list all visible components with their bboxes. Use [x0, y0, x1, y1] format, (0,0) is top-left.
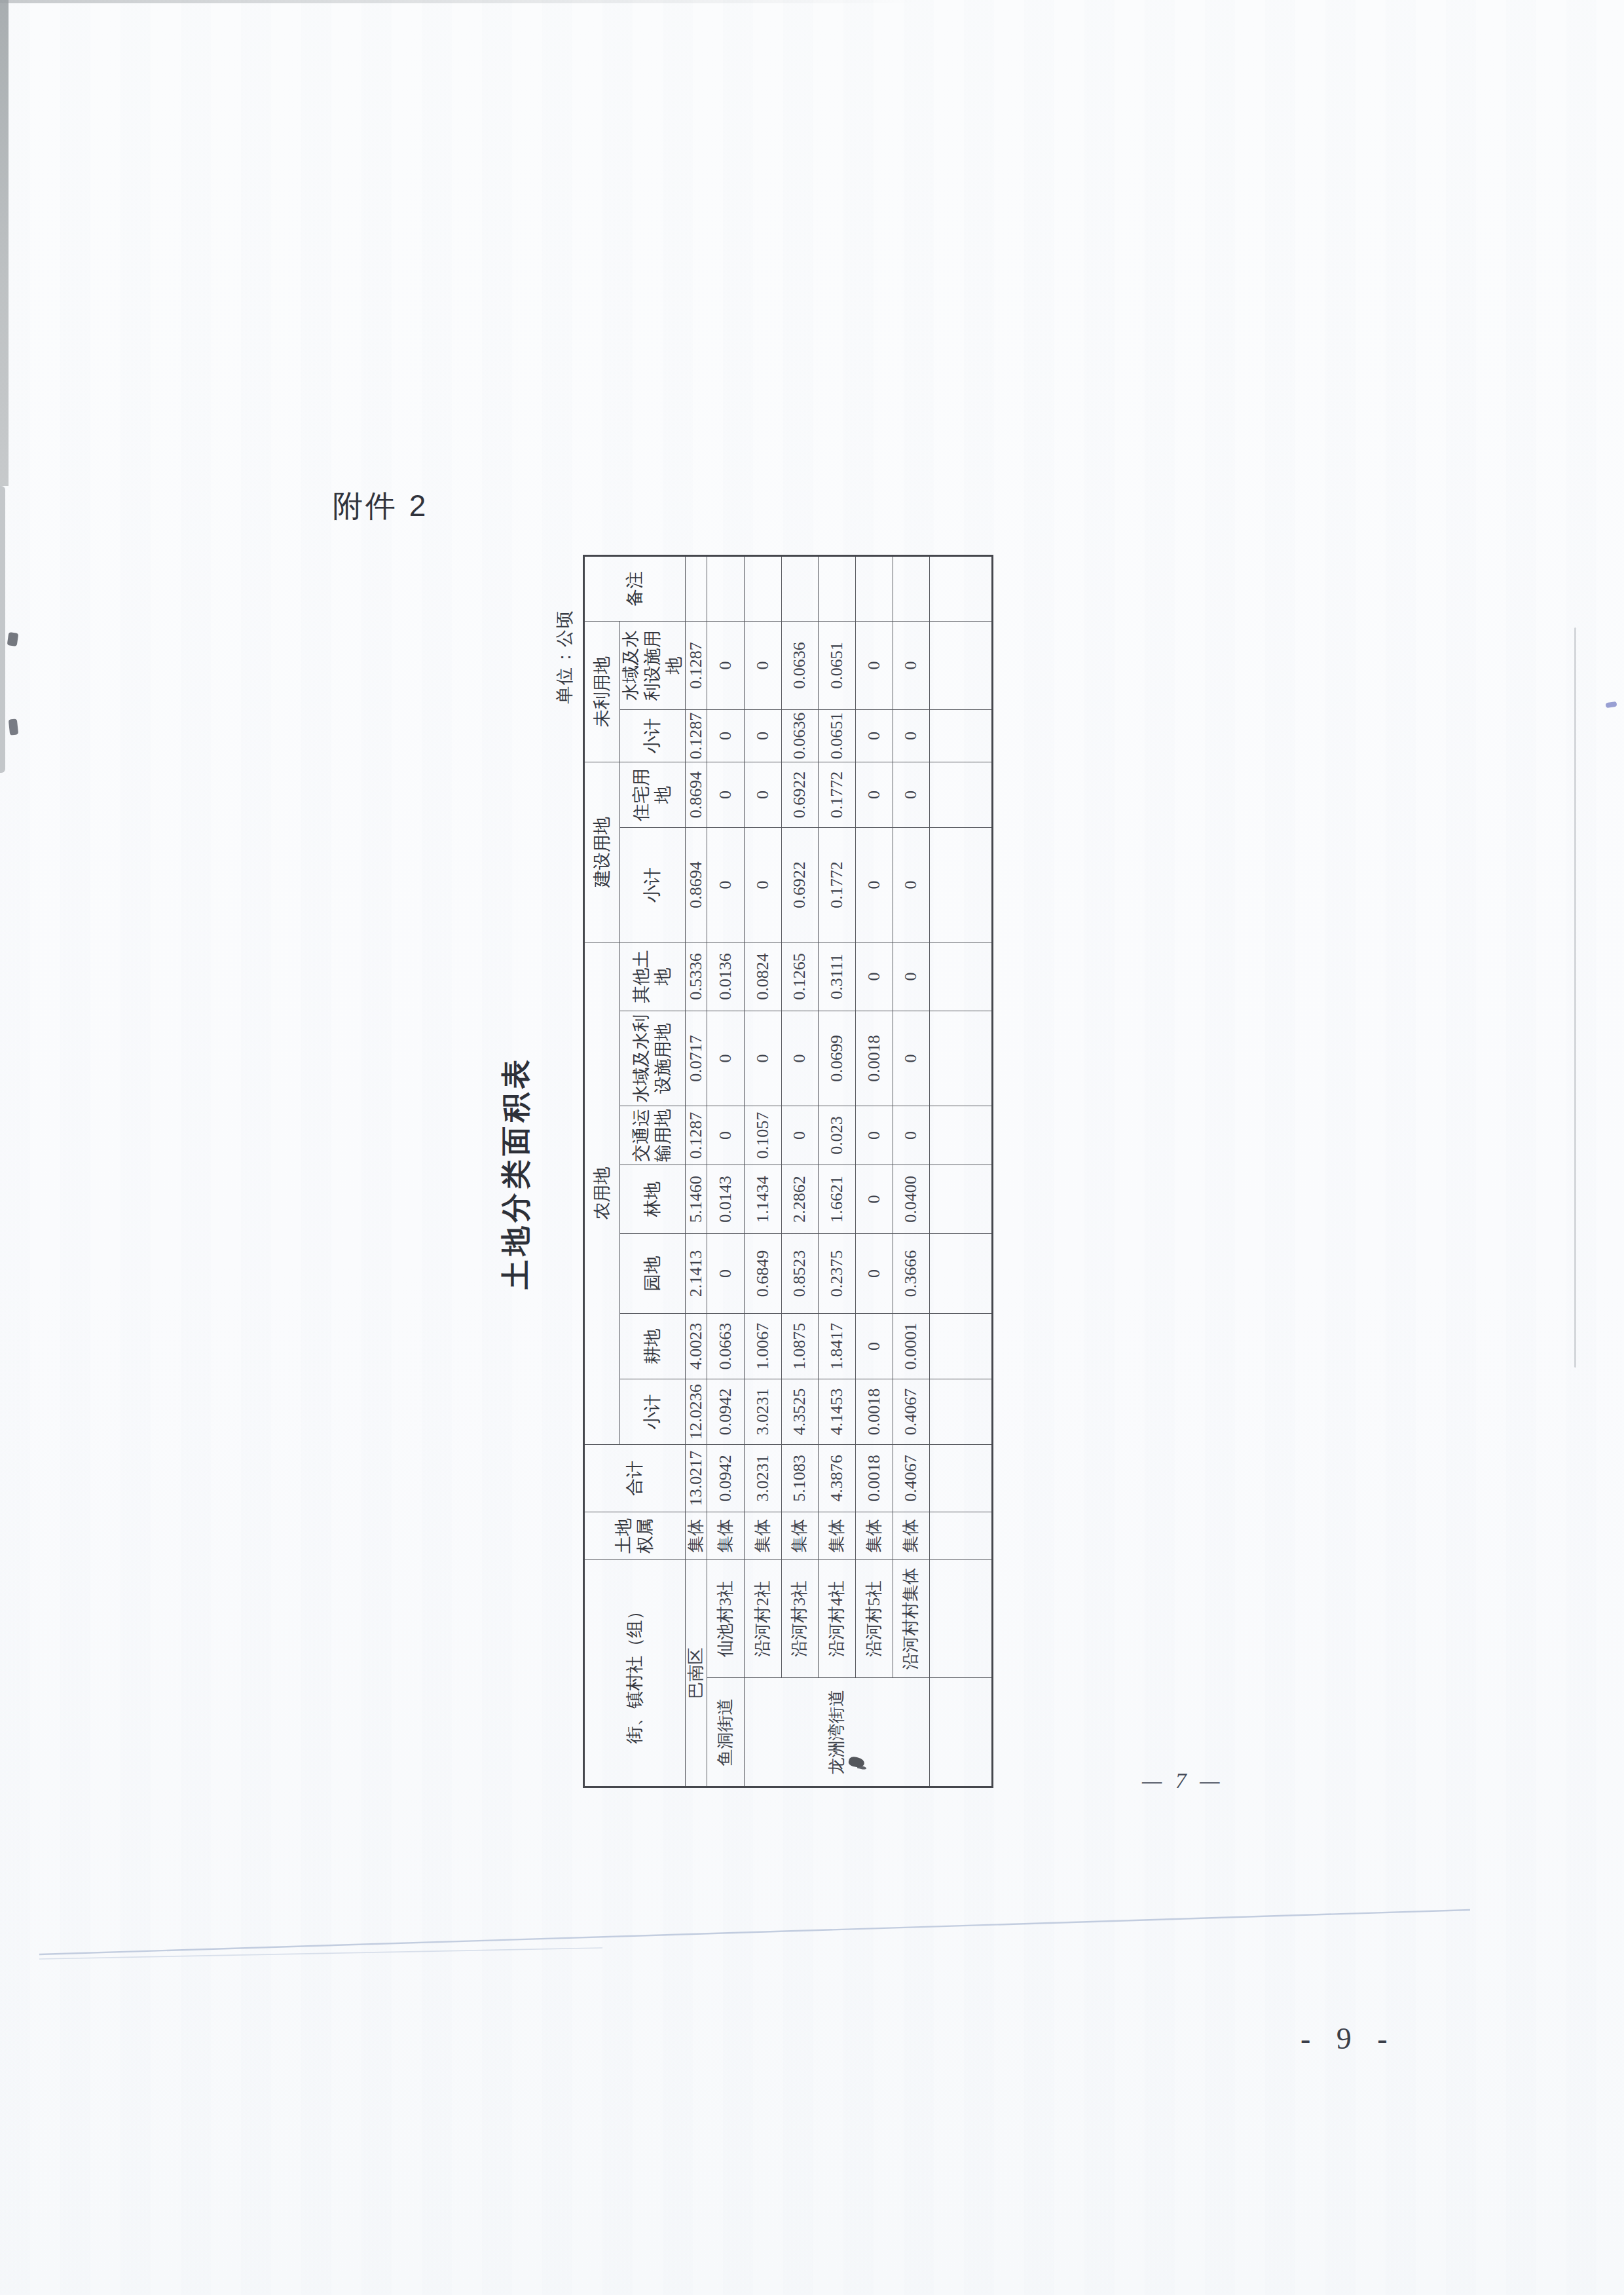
table-cell: 沿河村村集体 — [893, 1560, 929, 1678]
table-cell: 沿河村5社 — [855, 1560, 893, 1678]
table-cell: 0 — [893, 1106, 929, 1165]
scan-right-edge-artifact — [1574, 627, 1576, 1368]
table-cell: 0.0651 — [818, 621, 855, 709]
header-ownership: 土地权属 — [584, 1512, 686, 1560]
table-cell: 0 — [855, 621, 893, 709]
table-cell: 0 — [744, 1011, 781, 1106]
table-cell: 集体 — [707, 1512, 744, 1560]
table-cell — [929, 762, 992, 827]
table-cell: 集体 — [893, 1512, 929, 1560]
table-cell: 0 — [707, 827, 744, 942]
table-cell: 0.0143 — [707, 1165, 744, 1234]
table-cell — [929, 1234, 992, 1314]
table-cell: 沿河村2社 — [744, 1560, 781, 1678]
table-cell: 0 — [707, 1011, 744, 1106]
table-cell: 0.3111 — [818, 942, 855, 1011]
table-cell: 0.0136 — [707, 942, 744, 1011]
table-cell — [929, 555, 992, 621]
table-cell: 3.0231 — [744, 1379, 781, 1445]
table-cell: 0 — [893, 762, 929, 827]
table-cell — [929, 1314, 992, 1379]
header-agri-subtotal: 小计 — [620, 1379, 686, 1445]
table-cell: 0 — [744, 621, 781, 709]
table-cell: 5.1083 — [781, 1445, 818, 1512]
table-cell: 12.0236 — [685, 1379, 707, 1445]
table-cell: 0.0018 — [855, 1011, 893, 1106]
header-residential: 住宅用地 — [620, 762, 686, 827]
table-cell: 巴南区 — [685, 1560, 707, 1787]
table-cell: 0 — [855, 1234, 893, 1314]
table-cell — [818, 555, 855, 621]
scan-edge-mark — [9, 718, 18, 735]
table-cell: 0.1287 — [685, 1106, 707, 1165]
table-cell: 0.0824 — [744, 942, 781, 1011]
table-cell: 集体 — [855, 1512, 893, 1560]
header-transport: 交通运输用地 — [620, 1106, 686, 1165]
header-constr-group: 建设用地 — [584, 762, 620, 942]
table-cell: 0.1057 — [744, 1106, 781, 1165]
table-cell: 0.1287 — [685, 621, 707, 709]
table-cell: 4.1453 — [818, 1379, 855, 1445]
header-forest: 林地 — [620, 1165, 686, 1234]
table-cell: 4.3876 — [818, 1445, 855, 1512]
table-cell: 1.0875 — [781, 1314, 818, 1379]
table-cell: 0.0001 — [893, 1314, 929, 1379]
table-cell: 0 — [707, 1106, 744, 1165]
inner-page-number: — 7 — — [1142, 1768, 1223, 1793]
header-cultivated: 耕地 — [620, 1314, 686, 1379]
table-cell — [929, 709, 992, 762]
table-cell — [781, 555, 818, 621]
table-cell: 0 — [893, 621, 929, 709]
header-unused-group: 未利用地 — [584, 621, 620, 762]
table-cell: 0 — [855, 1165, 893, 1234]
outer-page-number: - 9 - — [1301, 2021, 1397, 2056]
table-cell: 龙洲湾街道 — [744, 1678, 929, 1787]
table-cell: 0.6849 — [744, 1234, 781, 1314]
scan-left-edge-artifact — [0, 486, 5, 773]
header-unused-subtotal: 小计 — [620, 709, 686, 762]
table-cell: 0 — [744, 709, 781, 762]
header-other-land: 其他土地 — [620, 942, 686, 1011]
table-cell: 0.5336 — [685, 942, 707, 1011]
scan-left-edge-artifact — [0, 0, 9, 486]
table-cell: 0.8523 — [781, 1234, 818, 1314]
header-agri-group: 农用地 — [584, 942, 620, 1444]
table-cell: 0 — [855, 709, 893, 762]
scanned-document-page: { "page": { "attachment_label": "附件 2", … — [0, 0, 1624, 2295]
table-cell: 0 — [855, 942, 893, 1011]
header-constr-subtotal: 小计 — [620, 827, 686, 942]
table-cell: 0.6922 — [781, 762, 818, 827]
unit-note: 单位：公顷 — [553, 609, 576, 704]
table-cell: 0.0018 — [855, 1379, 893, 1445]
table-cell: 0.0717 — [685, 1011, 707, 1106]
table-cell — [929, 1106, 992, 1165]
table-cell: 集体 — [818, 1512, 855, 1560]
table-cell: 0 — [707, 1234, 744, 1314]
table-cell: 仙池村3社 — [707, 1560, 744, 1678]
table-cell: 2.2862 — [781, 1165, 818, 1234]
table-cell: 0 — [855, 762, 893, 827]
table-cell: 0.0942 — [707, 1445, 744, 1512]
table-cell: 0.8694 — [685, 762, 707, 827]
table-cell: 集体 — [781, 1512, 818, 1560]
table-cell — [929, 1165, 992, 1234]
table-cell — [929, 1379, 992, 1445]
table-cell: 集体 — [685, 1512, 707, 1560]
table-cell: 0 — [781, 1106, 818, 1165]
table-cell: 0.0636 — [781, 621, 818, 709]
table-cell: 集体 — [744, 1512, 781, 1560]
table-cell: 0.0018 — [855, 1445, 893, 1512]
land-classification-table: 街、镇村社（组） 土地权属 合计 农用地 建设用地 未利用地 备注 小计 耕地 … — [583, 555, 993, 1788]
table-cell — [855, 555, 893, 621]
table-cell: 0.1265 — [781, 942, 818, 1011]
table-cell: 0.0651 — [818, 709, 855, 762]
attachment-label: 附件 2 — [333, 486, 428, 527]
table-cell — [707, 555, 744, 621]
table-cell: 沿河村3社 — [781, 1560, 818, 1678]
table-cell: 0.6922 — [781, 827, 818, 942]
table-cell — [929, 1011, 992, 1106]
table-cell: 沿河村4社 — [818, 1560, 855, 1678]
table-cell — [929, 1445, 992, 1512]
table-cell: 0 — [893, 942, 929, 1011]
table-cell: 0 — [855, 1314, 893, 1379]
table-cell: 1.0067 — [744, 1314, 781, 1379]
header-remarks: 备注 — [584, 555, 686, 621]
table-cell: 0.1772 — [818, 827, 855, 942]
table-cell: 0.3666 — [893, 1234, 929, 1314]
table-cell: 0.0699 — [818, 1011, 855, 1106]
table-cell: 0 — [893, 1011, 929, 1106]
header-agri-water: 水域及水利设施用地 — [620, 1011, 686, 1106]
scan-edge-mark — [7, 632, 19, 646]
header-region: 街、镇村社（组） — [584, 1560, 686, 1787]
table-title: 土地分类面积表 — [496, 557, 536, 1788]
table-cell: 0 — [707, 621, 744, 709]
table-cell: 0.0400 — [893, 1165, 929, 1234]
table-cell: 0.0942 — [707, 1379, 744, 1445]
table-cell: 0 — [893, 709, 929, 762]
table-cell: 1.1434 — [744, 1165, 781, 1234]
table-cell: 4.3525 — [781, 1379, 818, 1445]
table-cell: 0.1772 — [818, 762, 855, 827]
header-garden: 园地 — [620, 1234, 686, 1314]
table-cell: 0.4067 — [893, 1445, 929, 1512]
table-cell: 鱼洞街道 — [707, 1678, 744, 1787]
rotated-landscape-table-block: 土地分类面积表 单位：公顷 街、镇村社（组） 土地权属 合计 农用地 建设用地 … — [471, 557, 969, 1788]
table-cell — [929, 827, 992, 942]
table-cell — [929, 1512, 992, 1560]
table-cell: 2.1413 — [685, 1234, 707, 1314]
table-cell: 0.8694 — [685, 827, 707, 942]
table-cell — [744, 555, 781, 621]
table-cell — [685, 555, 707, 621]
table-cell: 0 — [855, 827, 893, 942]
table-cell: 0 — [744, 762, 781, 827]
table-cell: 0.2375 — [818, 1234, 855, 1314]
table-cell: 5.1460 — [685, 1165, 707, 1234]
header-total: 合计 — [584, 1445, 686, 1512]
table-cell: 0.1287 — [685, 709, 707, 762]
table-cell: 0 — [855, 1106, 893, 1165]
table-cell: 0 — [781, 1011, 818, 1106]
table-cell — [929, 1678, 992, 1787]
table-cell: 1.8417 — [818, 1314, 855, 1379]
table-cell: 0 — [707, 709, 744, 762]
table-cell: 0 — [744, 827, 781, 942]
scan-top-edge-artifact — [0, 0, 917, 3]
table-cell — [929, 621, 992, 709]
table-cell: 3.0231 — [744, 1445, 781, 1512]
table-cell: 0.023 — [818, 1106, 855, 1165]
table-cell — [893, 555, 929, 621]
table-cell: 0.4067 — [893, 1379, 929, 1445]
header-unused-water: 水域及水利设施用地 — [620, 621, 686, 709]
table-cell: 0 — [707, 762, 744, 827]
table-cell — [929, 942, 992, 1011]
table-cell: 0.0663 — [707, 1314, 744, 1379]
table-cell: 4.0023 — [685, 1314, 707, 1379]
table-cell: 1.6621 — [818, 1165, 855, 1234]
table-cell: 0 — [893, 827, 929, 942]
table-cell: 13.0217 — [685, 1445, 707, 1512]
table-cell: 0.0636 — [781, 709, 818, 762]
table-cell — [929, 1560, 992, 1678]
